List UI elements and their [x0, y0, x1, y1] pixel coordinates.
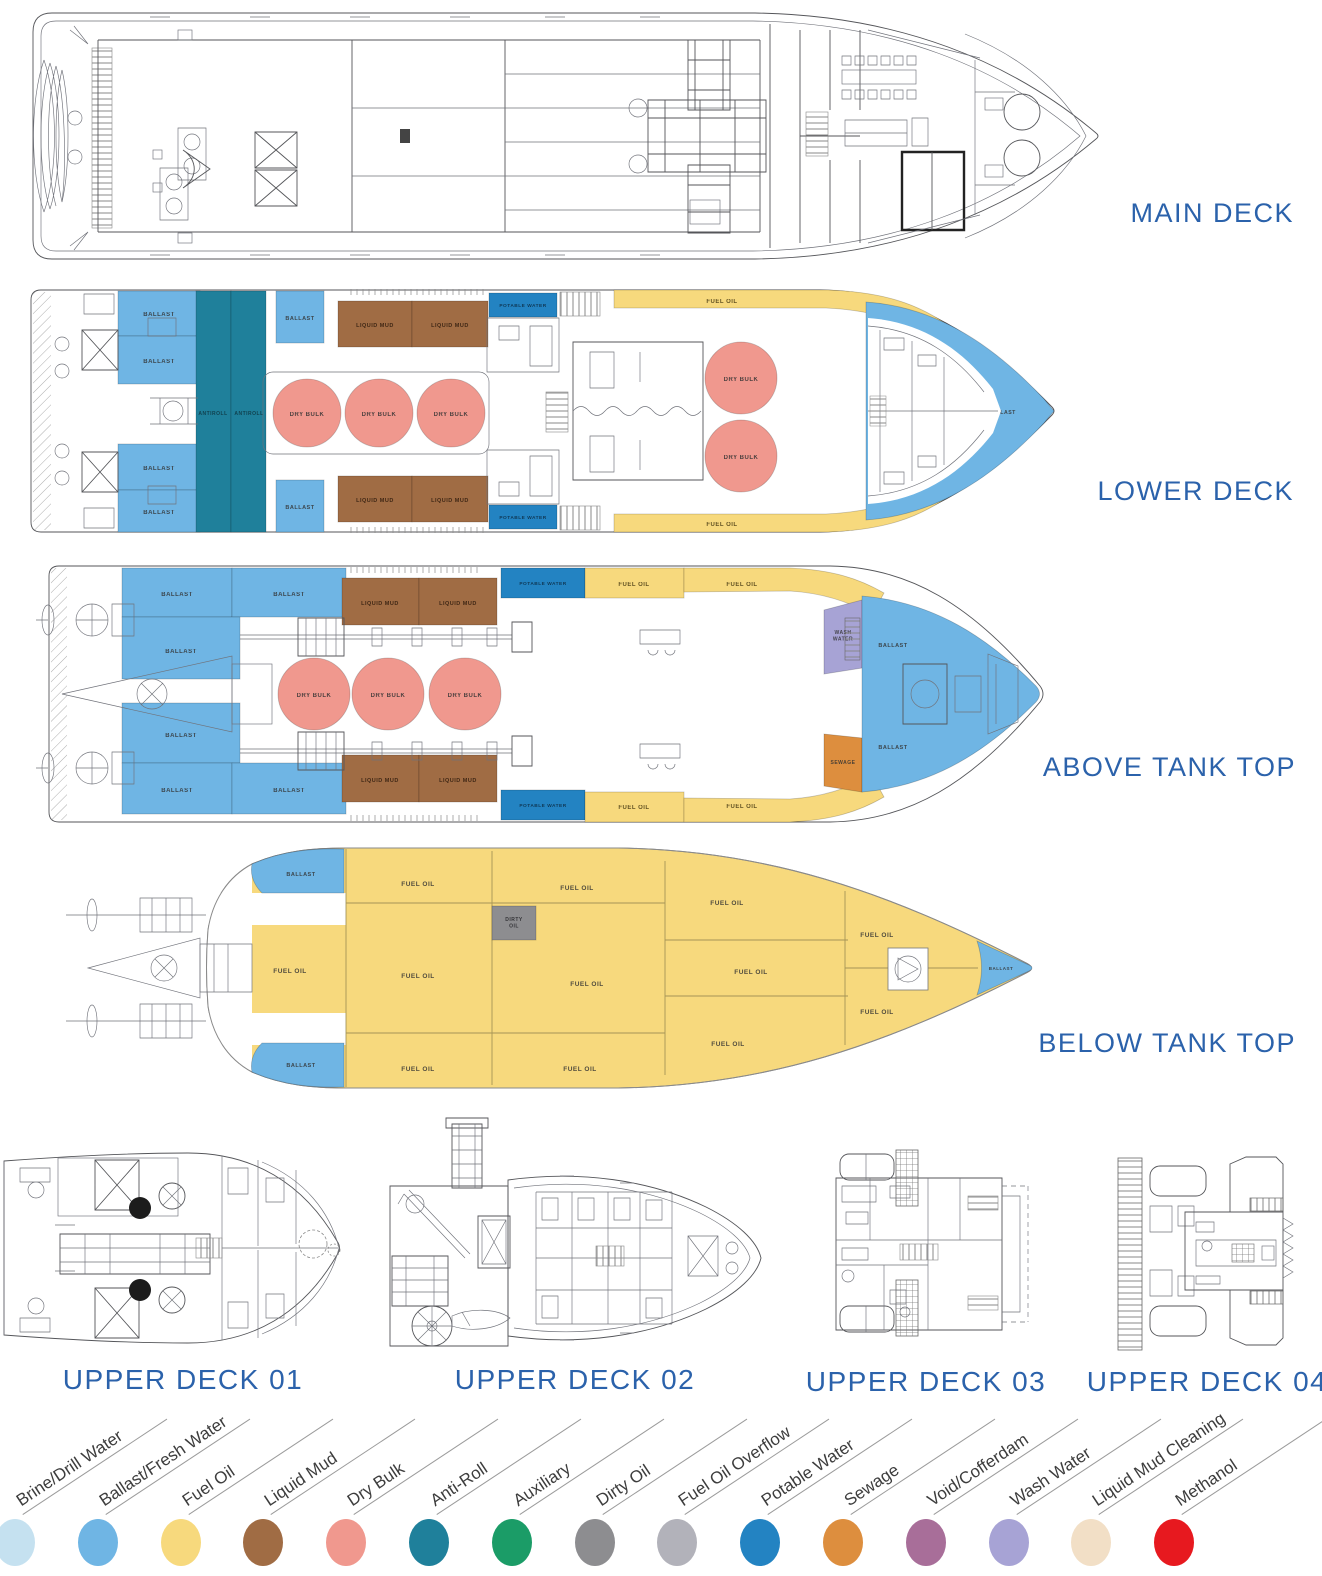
tank-label: FUEL OIL	[563, 1066, 597, 1073]
tank-label: BALLAST	[989, 966, 1014, 971]
tank-label: FUEL OIL	[273, 968, 307, 975]
tank-label: LIQUID MUD	[431, 323, 469, 329]
tank-label: FUEL OIL	[401, 881, 435, 888]
upper-deck-02-title: UPPER DECK 02	[455, 1364, 695, 1396]
funnel-starboard	[129, 1279, 151, 1301]
stern-cone	[88, 938, 200, 998]
tank-label: BALLAST	[165, 733, 197, 739]
legend-swatch-anti_roll	[409, 1519, 449, 1566]
tank-label: DRY BULK	[434, 412, 469, 418]
liferaft	[1150, 1306, 1206, 1336]
tank-ballast_fresh_water	[122, 617, 240, 679]
tank-label: BALLAST	[273, 788, 305, 794]
tank-label: BALLAST	[165, 649, 197, 655]
tank-label: POTABLE WATER	[519, 803, 566, 809]
tank-ballast_fresh_water	[251, 849, 344, 893]
legend-swatch-methanol	[1154, 1519, 1194, 1566]
stern-roller	[34, 60, 69, 212]
tank-label: DRY BULK	[724, 377, 759, 383]
tank-label: ANTIROLL	[234, 411, 263, 417]
legend-swatch-auxiliary	[492, 1519, 532, 1566]
tank-label: BALLAST	[143, 359, 175, 365]
tank-label: LIQUID MUD	[361, 601, 399, 607]
tank-label: BALLAST	[273, 592, 305, 598]
tank-label: BALLAST	[161, 592, 193, 598]
tank-label: FUEL OIL	[726, 582, 757, 588]
tank-label: DRY BULK	[371, 693, 406, 699]
lower-deck-title: LOWER DECK	[1097, 476, 1294, 507]
tank-label: POTABLE WATER	[499, 515, 546, 521]
tank-label: SEWAGE	[831, 760, 856, 766]
tank-label: DRY BULK	[290, 412, 325, 418]
mast-column	[1118, 1158, 1142, 1350]
legend-swatch-fuel_oil	[161, 1519, 201, 1566]
liferaft	[840, 1154, 894, 1180]
legend-swatch-wash_water	[989, 1519, 1029, 1566]
tank-label: BALLAST	[286, 1063, 315, 1069]
tank-label: FUEL OIL	[560, 885, 594, 892]
upper-deck-03-plan	[836, 1150, 1028, 1336]
above-tank-top-title: ABOVE TANK TOP	[1043, 752, 1296, 783]
tank-label: LIQUID MUD	[439, 778, 477, 784]
lower-deck-plan: BALLASTBALLASTBALLASTBALLASTANTIROLLANTI…	[31, 289, 1054, 533]
tank-label: FUEL OIL	[726, 804, 757, 810]
below-tank-top-plan: BALLASTBALLASTDIRTYOILBALLASTFUEL OILFUE…	[66, 848, 1032, 1088]
tank-label: BALLAST	[143, 312, 175, 318]
mess-seating	[842, 56, 916, 99]
legend-swatch-dirty_oil	[575, 1519, 615, 1566]
tank-label: FUEL OIL	[710, 900, 744, 907]
tank-label: LIQUID MUD	[361, 778, 399, 784]
main-deck-plan	[33, 13, 1098, 259]
tank-label: DRY BULK	[297, 693, 332, 699]
tank-label: BALLAST	[878, 745, 907, 751]
upper-deck-01-title: UPPER DECK 01	[63, 1364, 303, 1396]
tank-label: LIQUID MUD	[356, 498, 394, 504]
tank-label: BALLAST	[143, 510, 175, 516]
liferaft	[840, 1306, 894, 1332]
upper-deck-03-title: UPPER DECK 03	[806, 1366, 1046, 1398]
tank-label: LIQUID MUD	[431, 498, 469, 504]
tank-label: OIL	[509, 924, 519, 930]
tank-label: FUEL OIL	[860, 1009, 894, 1016]
tank-label: BALLAST	[161, 788, 193, 794]
tank-label: LIQUID MUD	[356, 323, 394, 329]
bow-thruster-box	[888, 948, 928, 990]
deck-plans-canvas: BALLASTBALLASTBALLASTBALLASTANTIROLLANTI…	[0, 0, 1322, 1576]
main-deck-title: MAIN DECK	[1130, 198, 1294, 229]
tank-label: BALLAST	[878, 643, 907, 649]
crane-boom	[398, 1190, 470, 1258]
legend-swatch-void_cofferdam	[906, 1519, 946, 1566]
tank-label: FUEL OIL	[860, 932, 894, 939]
legend-swatch-sewage	[823, 1519, 863, 1566]
tank-label: DIRTY	[505, 917, 523, 923]
upper-deck-01-plan	[4, 1153, 340, 1343]
tank-label: ANTIROLL	[198, 411, 227, 417]
funnel-port	[129, 1197, 151, 1219]
legend-swatch-dry_bulk	[326, 1519, 366, 1566]
tank-label: FUEL OIL	[711, 1041, 745, 1048]
vessel-deck-plans-page: { "palette": { "brine_drill_water": "#C5…	[0, 0, 1322, 1576]
tank-ballast_fresh_water	[862, 596, 1040, 792]
tank-label: FUEL OIL	[734, 969, 768, 976]
engine-room	[573, 342, 703, 480]
lars-tower	[688, 40, 730, 233]
upper-deck-02-plan	[390, 1118, 761, 1346]
upper-deck-02-outline	[390, 1186, 508, 1346]
legend-swatch-potable_water	[740, 1519, 780, 1566]
tank-label: BALLAST	[143, 466, 175, 472]
tank-label: DRY BULK	[724, 455, 759, 461]
tank-label: FUEL OIL	[401, 973, 435, 980]
above-tank-top-plan: BALLASTBALLASTBALLASTBALLASTBALLASTBALLA…	[36, 566, 1043, 822]
tank-label: FUEL OIL	[570, 981, 604, 988]
tank-label: BALLAST	[285, 505, 314, 511]
below-tank-top-title: BELOW TANK TOP	[1038, 1028, 1296, 1059]
tank-label: POTABLE WATER	[519, 581, 566, 587]
main-deck-hull	[33, 13, 1098, 259]
tank-label: BALLAST	[286, 872, 315, 878]
tank-room-outline	[902, 152, 964, 230]
tank-label: POTABLE WATER	[499, 303, 546, 309]
tank-label: BALLAST	[285, 316, 314, 322]
tank-label: FUEL OIL	[618, 582, 649, 588]
upper-deck-04-plan	[1118, 1157, 1293, 1350]
tank-label: FUEL OIL	[706, 299, 737, 305]
upper-deck-04-title: UPPER DECK 04	[1087, 1366, 1322, 1398]
liferaft	[1150, 1166, 1206, 1196]
legend-swatch-ballast_fresh_water	[78, 1519, 118, 1566]
deck-winches	[255, 132, 297, 206]
tank-label: DRY BULK	[362, 412, 397, 418]
tank-label: FUEL OIL	[706, 522, 737, 528]
tank-label: FUEL OIL	[401, 1066, 435, 1073]
tank-label: DRY BULK	[448, 693, 483, 699]
tank-label: FUEL OIL	[618, 805, 649, 811]
workboat	[452, 1310, 510, 1329]
tank-label: LIQUID MUD	[439, 601, 477, 607]
